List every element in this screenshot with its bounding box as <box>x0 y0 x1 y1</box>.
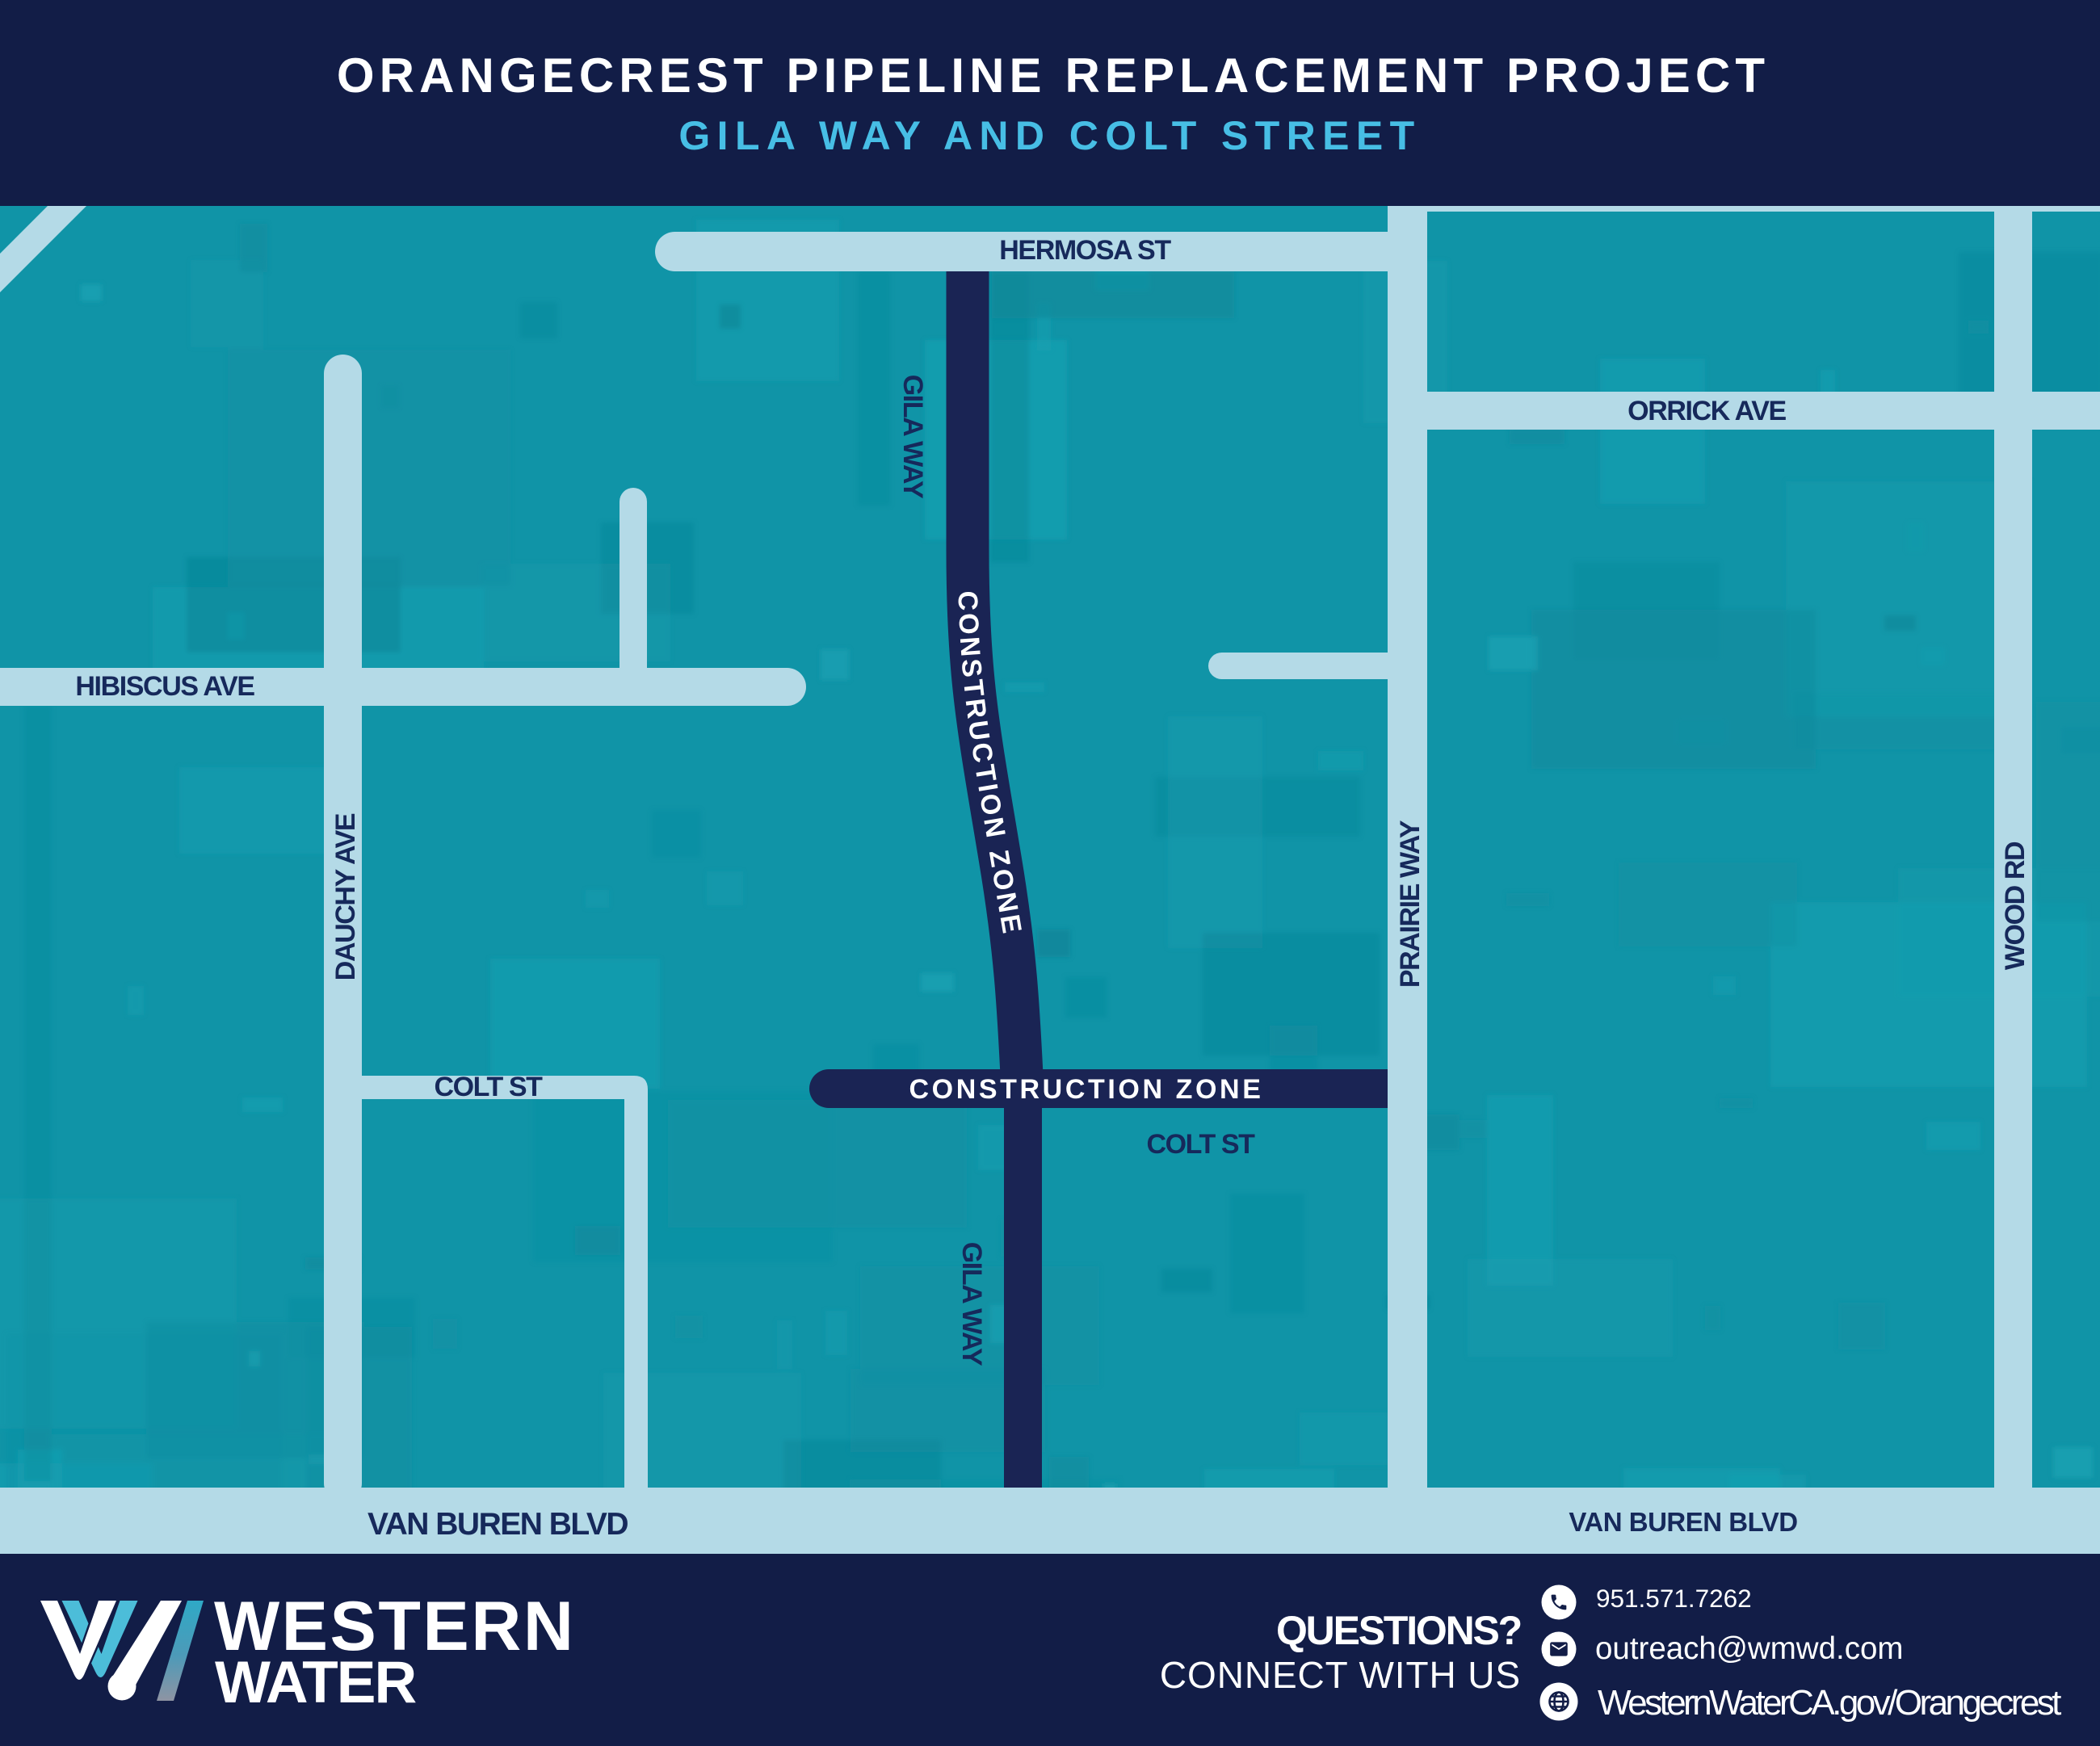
svg-text:WesternWaterCA.gov/Orangecrest: WesternWaterCA.gov/Orangecrest <box>1598 1683 2061 1723</box>
svg-text:WATER: WATER <box>215 1650 416 1715</box>
svg-text:VAN BUREN BLVD: VAN BUREN BLVD <box>367 1507 628 1542</box>
svg-text:HERMOSA ST: HERMOSA ST <box>999 235 1171 266</box>
svg-text:QUESTIONS?: QUESTIONS? <box>1276 1608 1521 1653</box>
svg-text:outreach@wmwd.com: outreach@wmwd.com <box>1595 1631 1903 1666</box>
svg-text:DAUCHY AVE: DAUCHY AVE <box>330 813 361 980</box>
svg-text:GILA WAY: GILA WAY <box>897 375 928 499</box>
svg-text:ORANGECREST PIPELINE REPLACEME: ORANGECREST PIPELINE REPLACEMENT PROJECT <box>337 48 1770 103</box>
svg-text:VAN BUREN BLVD: VAN BUREN BLVD <box>1569 1507 1797 1537</box>
svg-text:CONSTRUCTION ZONE: CONSTRUCTION ZONE <box>909 1074 1264 1105</box>
svg-text:GILA WAY AND COLT STREET: GILA WAY AND COLT STREET <box>678 113 1421 158</box>
svg-text:COLT ST: COLT ST <box>434 1072 543 1102</box>
svg-text:CONNECT WITH US: CONNECT WITH US <box>1160 1654 1521 1696</box>
svg-text:HIBISCUS AVE: HIBISCUS AVE <box>75 671 254 702</box>
svg-text:COLT ST: COLT ST <box>1146 1129 1255 1160</box>
svg-text:GILA WAY: GILA WAY <box>956 1242 987 1366</box>
svg-text:WOOD RD: WOOD RD <box>2000 842 2031 970</box>
svg-text:ORRICK AVE: ORRICK AVE <box>1627 396 1786 426</box>
svg-text:951.571.7262: 951.571.7262 <box>1596 1584 1752 1613</box>
svg-text:PRAIRIE WAY: PRAIRIE WAY <box>1395 820 1426 988</box>
